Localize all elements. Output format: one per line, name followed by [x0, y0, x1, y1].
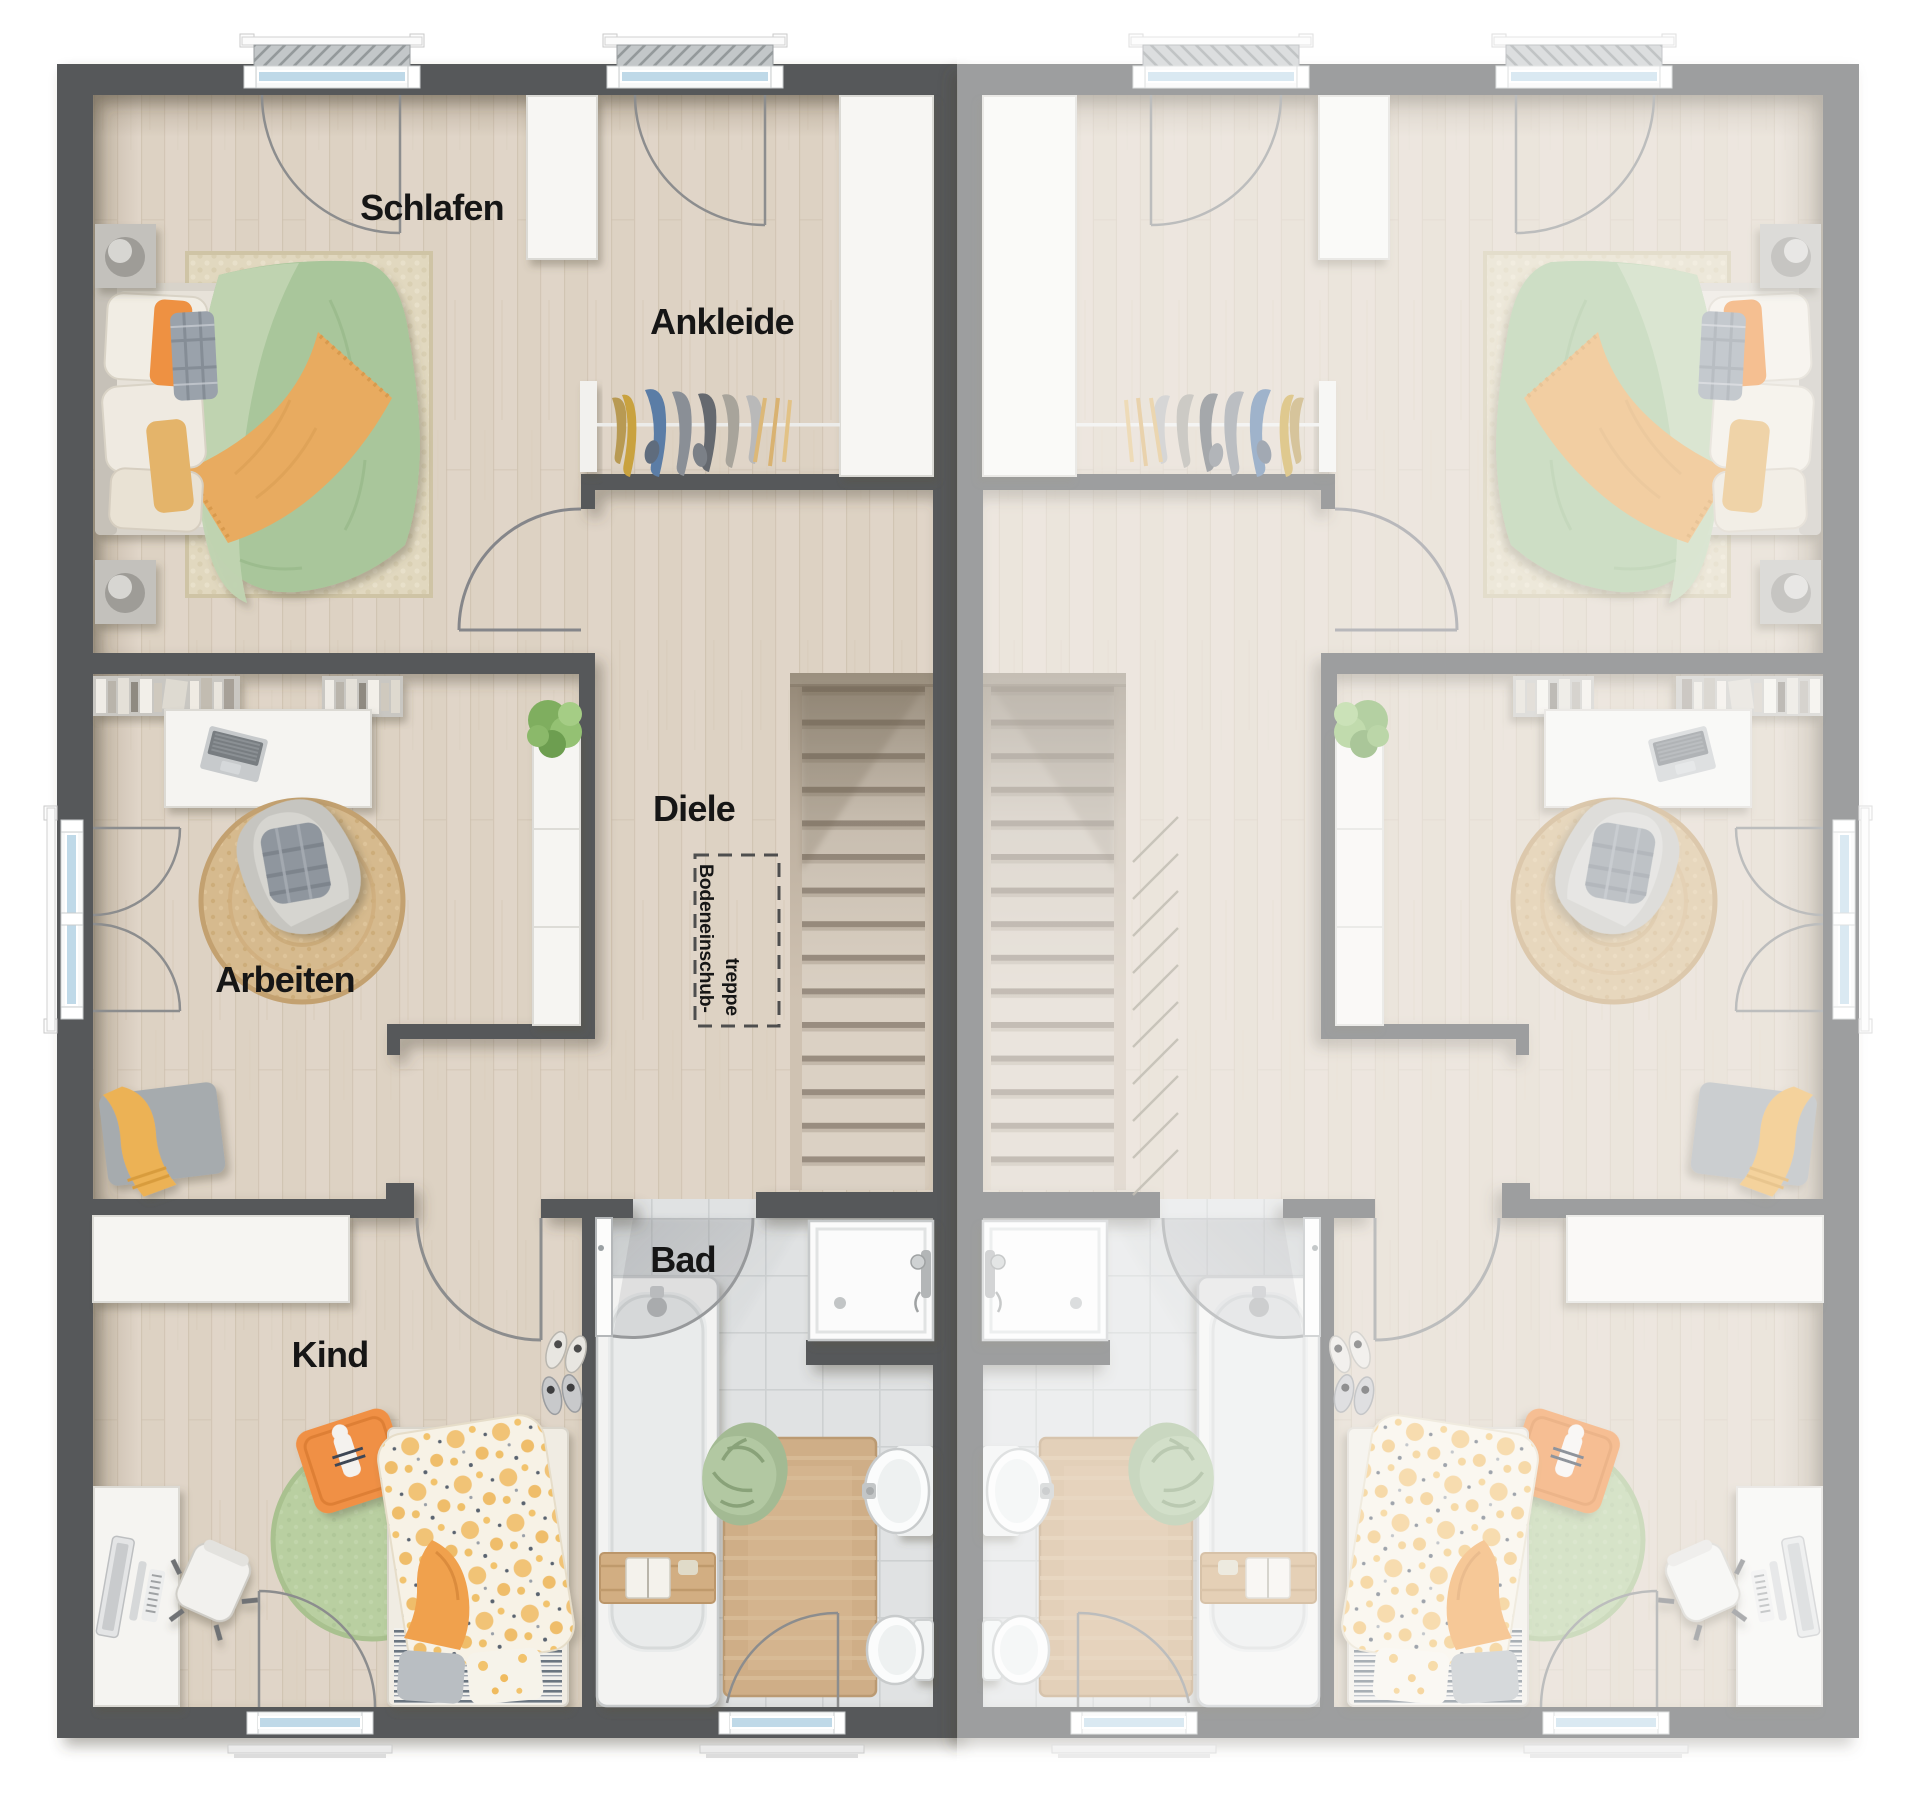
- svg-text:Bodeneinschub-: Bodeneinschub-: [695, 864, 717, 1013]
- svg-text:Arbeiten: Arbeiten: [215, 959, 355, 1000]
- svg-text:Schlafen: Schlafen: [360, 187, 504, 228]
- svg-text:Diele: Diele: [653, 788, 735, 829]
- svg-text:Bad: Bad: [650, 1239, 716, 1280]
- svg-text:Kind: Kind: [292, 1334, 369, 1375]
- svg-text:Ankleide: Ankleide: [650, 301, 794, 342]
- svg-text:treppe: treppe: [721, 958, 743, 1016]
